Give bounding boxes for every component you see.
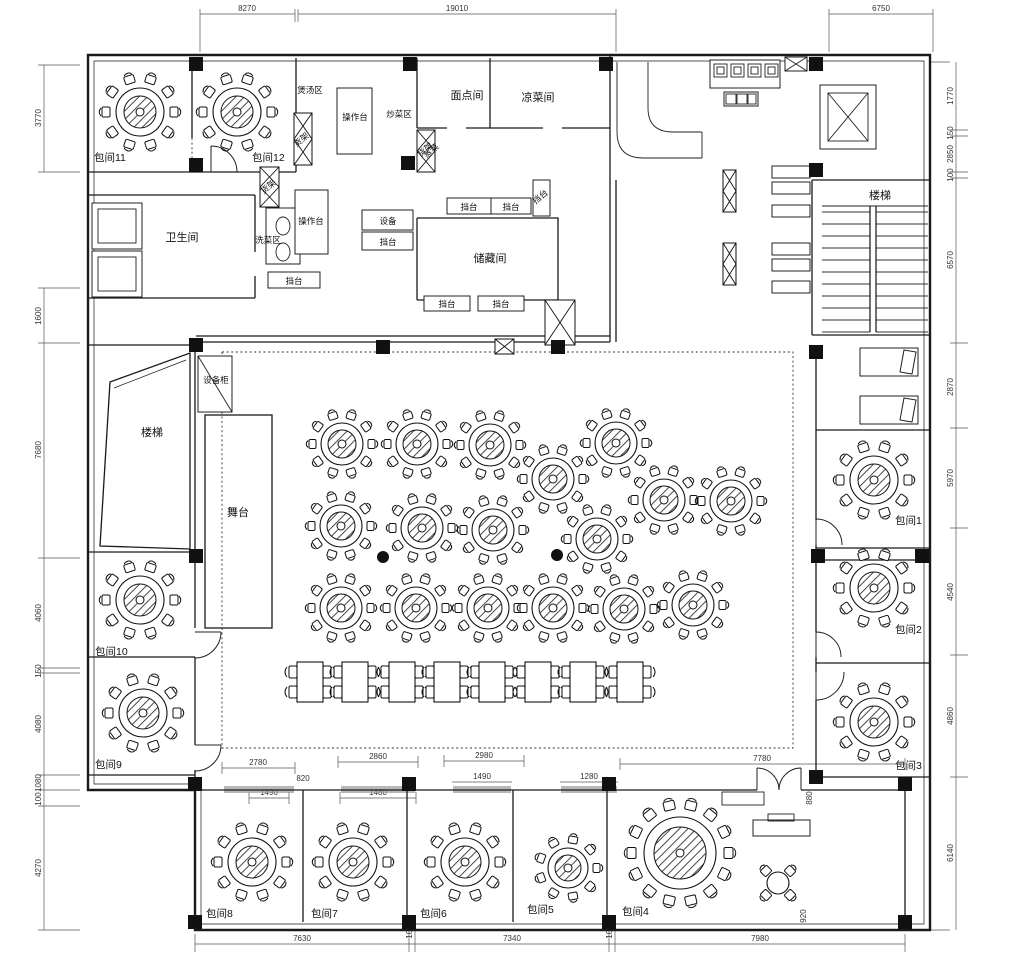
round-table xyxy=(305,573,377,644)
structural-column xyxy=(188,777,202,791)
round-column xyxy=(551,549,563,561)
round-table xyxy=(833,682,915,763)
dim-top-2: 19010 xyxy=(446,4,469,13)
rect-table xyxy=(513,662,563,702)
structural-column xyxy=(915,549,929,563)
dim-left-1: 3770 xyxy=(34,109,43,127)
counter xyxy=(753,820,810,836)
label-private-room-2: 包间2 xyxy=(895,623,922,636)
dim-right-10: 6140 xyxy=(946,844,955,862)
label-serving-counter: 挡台 xyxy=(285,276,302,286)
dim-inner-1: 2780 xyxy=(249,758,267,767)
label-pastry-room: 面点间 xyxy=(451,89,484,102)
structural-column xyxy=(809,163,823,177)
structural-column xyxy=(809,57,823,71)
label-serving-counter: 挡台 xyxy=(438,299,455,309)
rect-table xyxy=(330,662,380,702)
hatched-shaft xyxy=(545,300,575,345)
structural-column xyxy=(602,777,616,791)
floor-plan-canvas: 8270 19010 6750 7630 100 7340 100 7980 3… xyxy=(0,0,1025,980)
label-serving-counter: 挡台 xyxy=(379,237,396,247)
label-equipment: 设备 xyxy=(379,216,397,226)
dim-left-7: 1080 xyxy=(34,774,43,792)
round-table xyxy=(657,570,729,641)
structural-column xyxy=(809,770,823,784)
label-private-room-12: 包间12 xyxy=(252,151,285,164)
dim-inner-4: 2860 xyxy=(369,752,387,761)
hatched-shaft xyxy=(723,170,736,212)
dim-inner-8: 1280 xyxy=(580,772,598,781)
label-private-room-5: 包间5 xyxy=(527,903,554,916)
rect-table xyxy=(377,662,427,702)
square-table xyxy=(758,863,798,903)
dim-left-5: 150 xyxy=(34,664,43,678)
round-table xyxy=(380,573,452,644)
label-work-counter: 操作台 xyxy=(342,112,368,122)
label-cold-dish-room: 凉菜间 xyxy=(522,90,555,104)
round-table xyxy=(452,573,524,644)
structural-column xyxy=(403,57,417,71)
round-table xyxy=(211,822,293,903)
label-private-room-9: 包间9 xyxy=(95,758,122,771)
structural-column xyxy=(809,345,823,359)
round-table xyxy=(580,408,652,479)
round-table xyxy=(99,72,181,153)
round-table xyxy=(588,574,660,645)
dim-right-6: 2870 xyxy=(946,378,955,396)
label-serving-counter: 挡台 xyxy=(460,202,477,212)
label-private-room-8: 包间8 xyxy=(206,907,233,920)
dim-bottom-3: 7340 xyxy=(503,934,521,943)
door-arc xyxy=(757,768,779,790)
stairs-right xyxy=(822,206,928,332)
label-private-room-11: 包间11 xyxy=(94,151,126,164)
hatched-shafts xyxy=(260,113,736,354)
structural-column xyxy=(898,915,912,929)
label-wash-area: 洗菜区 xyxy=(255,235,281,245)
label-private-room-3: 包间3 xyxy=(895,759,922,772)
door-arc xyxy=(195,745,221,771)
rect-table xyxy=(605,662,655,702)
dim-inner-6: 2980 xyxy=(475,751,493,760)
door-arc xyxy=(816,672,844,700)
stairs-left-shape xyxy=(100,353,190,549)
round-table xyxy=(457,495,529,566)
door-arc xyxy=(816,519,842,545)
door-arc xyxy=(779,768,801,790)
door-arc xyxy=(195,632,221,658)
dim-right-9: 4860 xyxy=(946,707,955,725)
toilet-stall xyxy=(92,203,142,249)
dim-right-5: 6570 xyxy=(946,251,955,269)
dim-bottom-1: 7630 xyxy=(293,934,311,943)
rect-table xyxy=(285,662,335,702)
round-table xyxy=(517,444,589,515)
dim-inner-11: 920 xyxy=(799,909,808,923)
structural-column xyxy=(599,57,613,71)
dim-top-1: 8270 xyxy=(238,4,256,13)
round-column xyxy=(377,551,389,563)
label-equipment-cabinet: 设备柜 xyxy=(203,375,229,385)
stage xyxy=(205,415,272,628)
structural-column xyxy=(898,777,912,791)
structural-column xyxy=(811,549,825,563)
round-table xyxy=(424,822,506,903)
rect-table xyxy=(558,662,608,702)
rect-table xyxy=(467,662,517,702)
bed xyxy=(860,348,918,424)
label-stairs-right: 楼梯 xyxy=(869,188,891,202)
label-serving-counter: 挡台 xyxy=(502,202,519,212)
structural-column xyxy=(376,340,390,354)
label-serving-counter: 挡台 xyxy=(492,299,509,309)
dim-left-6: 4080 xyxy=(34,715,43,733)
dim-right-4: 100 xyxy=(946,168,955,182)
dim-bottom-5: 7980 xyxy=(751,934,769,943)
label-private-room-4: 包间4 xyxy=(622,905,649,918)
dim-left-3: 7680 xyxy=(34,441,43,459)
round-table xyxy=(517,573,589,644)
dim-right-1: 1770 xyxy=(946,87,955,105)
dim-left-9: 4270 xyxy=(34,859,43,877)
dim-right-8: 4540 xyxy=(946,583,955,601)
dim-inner-3: 820 xyxy=(296,774,310,783)
structural-column xyxy=(189,338,203,352)
label-restroom: 卫生间 xyxy=(166,230,199,244)
label-private-room-1: 包间1 xyxy=(895,514,922,527)
label-soup-area: 煲汤区 xyxy=(297,85,323,95)
dim-inner-10: 880 xyxy=(805,791,814,805)
dim-left-4: 4060 xyxy=(34,604,43,622)
dim-right-2: 150 xyxy=(946,126,955,140)
structural-column xyxy=(602,915,616,929)
dim-left-2: 1600 xyxy=(34,307,43,325)
dim-inner-9: 7780 xyxy=(753,754,771,763)
round-table xyxy=(386,493,458,564)
round-table xyxy=(833,440,915,521)
round-table xyxy=(196,72,278,153)
label-private-room-6: 包间6 xyxy=(420,907,447,920)
dim-right-3: 2850 xyxy=(946,145,955,163)
label-stairs-left: 楼梯 xyxy=(141,425,163,439)
round-table xyxy=(561,504,633,575)
label-storage-room: 储藏间 xyxy=(474,251,507,265)
round-table xyxy=(99,560,181,641)
round-table xyxy=(454,410,526,481)
shelf-stack xyxy=(772,166,810,293)
label-stir-fry-area: 炒菜区 xyxy=(386,109,412,119)
round-table xyxy=(534,833,603,903)
hatched-shaft xyxy=(495,339,514,354)
label-stage: 舞台 xyxy=(227,505,249,519)
structural-column xyxy=(402,777,416,791)
structural-column xyxy=(189,549,203,563)
label-private-room-7: 包间7 xyxy=(311,907,338,920)
dim-left-8: 100 xyxy=(34,792,43,806)
label-work-counter: 操作台 xyxy=(298,216,324,226)
rect-table xyxy=(422,662,472,702)
round-table xyxy=(312,822,394,903)
round-table xyxy=(306,409,378,480)
round-table xyxy=(102,673,184,754)
structural-column xyxy=(189,158,203,172)
floor-plan-svg: 8270 19010 6750 7630 100 7340 100 7980 3… xyxy=(0,0,1025,980)
hatched-shaft xyxy=(723,243,736,285)
structural-column xyxy=(188,915,202,929)
dim-right-7: 5970 xyxy=(946,469,955,487)
structural-column xyxy=(401,156,415,170)
structural-column xyxy=(402,915,416,929)
label-private-room-10: 包间10 xyxy=(95,645,128,658)
door-arc xyxy=(816,632,841,657)
round-table xyxy=(695,466,767,537)
dim-top-3: 6750 xyxy=(872,4,890,13)
round-table xyxy=(305,491,377,562)
round-table xyxy=(381,409,453,480)
dim-inner-7: 1490 xyxy=(473,772,491,781)
structural-column xyxy=(189,57,203,71)
structural-column xyxy=(551,340,565,354)
toilet-stall xyxy=(92,251,142,297)
door-arc xyxy=(211,146,237,172)
round-table xyxy=(624,797,736,908)
round-table xyxy=(628,465,700,536)
